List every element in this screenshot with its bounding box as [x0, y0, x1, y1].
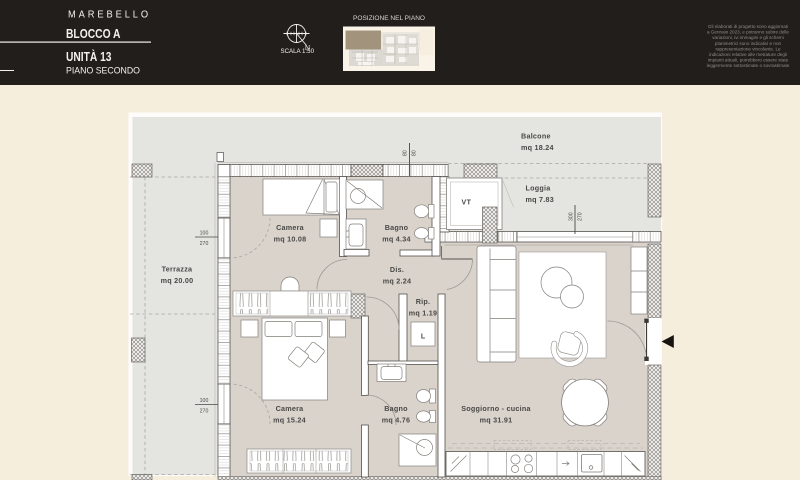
- svg-text:L: L: [421, 334, 426, 341]
- svg-text:impianti attuali, potrebbero e: impianti attuali, potrebbero essere stat…: [708, 58, 789, 63]
- svg-text:Bagno: Bagno: [384, 404, 408, 413]
- svg-text:Soggiorno - cucina: Soggiorno - cucina: [461, 404, 531, 413]
- svg-text:PIANO SECONDO: PIANO SECONDO: [66, 66, 140, 77]
- svg-text:rappresentazione vincolante. L: rappresentazione vincolante. Le: [715, 46, 781, 51]
- svg-text:mq 1.19: mq 1.19: [409, 309, 438, 318]
- svg-text:Camera: Camera: [276, 404, 305, 413]
- svg-text:100: 100: [200, 231, 209, 237]
- svg-text:UNITÀ 13: UNITÀ 13: [66, 49, 112, 64]
- svg-text:a Gennaio 2023, e potranno sub: a Gennaio 2023, e potranno subire delle: [707, 30, 789, 35]
- svg-text:POSIZIONE NEL PIANO: POSIZIONE NEL PIANO: [353, 15, 425, 22]
- svg-text:Rip.: Rip.: [416, 297, 431, 306]
- svg-text:Balcone: Balcone: [521, 132, 551, 141]
- svg-text:SCALA 1:50: SCALA 1:50: [281, 49, 315, 55]
- svg-text:Loggia: Loggia: [526, 184, 552, 193]
- svg-text:mq 15.24: mq 15.24: [273, 416, 306, 425]
- svg-text:mq 10.08: mq 10.08: [274, 234, 307, 243]
- svg-text:300: 300: [569, 212, 575, 221]
- svg-text:Gli elaborati di progetto sono: Gli elaborati di progetto sono aggiornat…: [708, 24, 788, 29]
- svg-text:VT: VT: [462, 200, 472, 207]
- svg-text:Terrazza: Terrazza: [162, 265, 193, 274]
- svg-text:100: 100: [200, 398, 209, 404]
- svg-text:indicazioni relative alle metr: indicazioni relative alle metrature degl…: [709, 52, 787, 57]
- svg-text:80: 80: [412, 150, 418, 156]
- svg-text:Bagno: Bagno: [385, 223, 409, 232]
- svg-text:mq 31.91: mq 31.91: [480, 416, 513, 425]
- svg-text:270: 270: [200, 241, 209, 247]
- svg-text:mq 18.24: mq 18.24: [521, 143, 554, 152]
- svg-text:planimetrici sono indicativi e: planimetrici sono indicativi e non: [715, 41, 782, 46]
- svg-text:BLOCCO A: BLOCCO A: [66, 26, 121, 41]
- svg-text:mq 4.76: mq 4.76: [382, 416, 411, 425]
- svg-text:270: 270: [578, 212, 584, 221]
- svg-text:variazioni, ivi immagini e gli: variazioni, ivi immagini e gli schemi: [712, 35, 783, 40]
- svg-text:mq 2.24: mq 2.24: [383, 277, 412, 286]
- svg-text:mq 4.34: mq 4.34: [382, 234, 411, 243]
- svg-text:270: 270: [200, 409, 209, 415]
- svg-text:mq 7.83: mq 7.83: [526, 195, 555, 204]
- svg-text:leggermente sottostimate o sov: leggermente sottostimate o sovrastimate: [707, 63, 790, 68]
- svg-text:Dis.: Dis.: [390, 265, 404, 274]
- svg-text:MAREBELLO: MAREBELLO: [68, 10, 151, 21]
- svg-text:Camera: Camera: [276, 223, 305, 232]
- svg-text:80: 80: [403, 150, 409, 156]
- svg-text:mq 20.00: mq 20.00: [161, 276, 194, 285]
